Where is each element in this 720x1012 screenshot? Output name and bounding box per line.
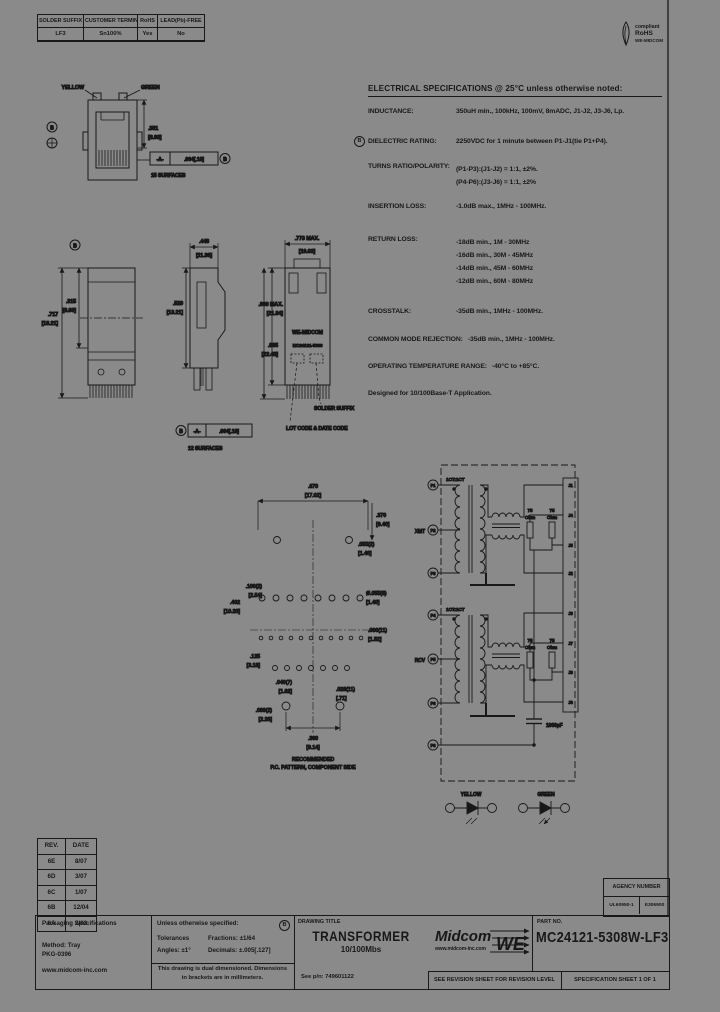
spec-footnote: Designed for 10/100Base-T Application. xyxy=(368,390,492,397)
pin-label: P1 xyxy=(431,483,437,488)
dim-773-in: .773 MAX. xyxy=(295,236,320,242)
rev-header: REV. xyxy=(38,839,66,855)
rear-view: B .315 [8.00] .717 [18.21] xyxy=(42,240,143,398)
frame-balloon: B xyxy=(223,157,227,163)
resistor-unit: Ohm xyxy=(547,515,557,520)
table-cell: No xyxy=(158,28,204,40)
turns-ratio-top: 1CT:1CT xyxy=(446,477,465,483)
electrical-specifications: ELECTRICAL SPECIFICATIONS @ 25°C unless … xyxy=(368,84,662,97)
dim-402-mm: [10.20] xyxy=(224,609,241,615)
table-row: 3/07 xyxy=(66,870,96,886)
pin-label: J3 xyxy=(568,611,573,616)
table-row: 1/07 xyxy=(66,886,96,902)
table-row: 8/07 xyxy=(66,855,96,871)
brand-url: www.midcom-inc.com xyxy=(434,946,486,952)
dim-520-in: .520 xyxy=(173,301,183,307)
see-pn-note: See p/n: 749601122 xyxy=(301,974,354,980)
midcom-logo: Midcom www.midcom-inc.com WE xyxy=(434,922,534,971)
pin-label: J1 xyxy=(568,483,573,488)
spec-value: -35dB min., 1MHz - 100MHz. xyxy=(456,308,543,315)
spec-label: DIELECTRIC RATING: xyxy=(368,138,456,145)
table-cell: Yes xyxy=(138,28,158,40)
spec-label: OPERATING TEMPERATURE RANGE: xyxy=(368,363,487,370)
dual-dimension-note: in brackets are in millimeters. xyxy=(151,975,294,981)
dim-670-mm: [17.02] xyxy=(305,493,322,499)
dim-315-mm: [8.00] xyxy=(63,308,77,314)
dim-351-mm: [8.93] xyxy=(148,135,162,141)
dim-028-mm: [.71] xyxy=(336,696,347,702)
dim-055b-mm: [1.40] xyxy=(366,600,380,606)
pin-label: J2 xyxy=(568,571,573,576)
balloon-b: B xyxy=(279,920,290,931)
dim-028-in: .028(11) xyxy=(336,687,355,693)
rohs-compliant-badge: compliant RoHS WE-MIDCOM xyxy=(619,20,663,48)
resistor-unit: Ohm xyxy=(547,645,557,650)
spec-value: 350uH min., 100kHz, 100mV, 8mADC, J1-J2,… xyxy=(456,108,624,115)
part-number: MC24121-5308W-LF3 xyxy=(536,929,668,946)
dim-885-mm: [22.48] xyxy=(262,352,279,358)
dim-370-in: .370 xyxy=(376,513,386,519)
tolerance-heading: Unless otherwise specified: xyxy=(157,920,239,927)
spec-value: -16dB min., 30M - 45MHz xyxy=(456,249,533,262)
dim-125-mm: [3.18] xyxy=(247,663,261,669)
pin-label: P4 xyxy=(431,613,437,618)
schematic: XMT RCV 1CT:1CT 1CT:1CT 75 Ohm 75 Ohm 75… xyxy=(415,465,578,824)
spec-value: -35dB min., 1MHz - 100MHz. xyxy=(468,336,555,343)
dim-100-in: .100(2) xyxy=(246,584,263,590)
spec-value: -1.0dB max., 1MHz - 100MHz. xyxy=(456,203,546,210)
badge-brand-text: WE-MIDCOM xyxy=(635,38,663,44)
resistor-unit: Ohm xyxy=(525,645,535,650)
dim-402-in: .402 xyxy=(230,600,240,606)
xmt-label: XMT xyxy=(415,529,425,535)
spec-value: -14dB min., 45M - 60MHz xyxy=(456,262,533,275)
table-cell: LF3 xyxy=(38,28,84,40)
resistor-unit: Ohm xyxy=(525,515,535,520)
agency-number-box: AGENCY NUMBER UL60950-1 E306900 xyxy=(603,878,670,917)
balloon-b: B xyxy=(50,126,54,132)
spec-row-inductance: INDUCTANCE: 350uH min., 100kHz, 100mV, 8… xyxy=(368,108,624,115)
date-header: DATE xyxy=(66,839,96,855)
dim-860-in: .860 MAX. xyxy=(258,302,283,308)
pcb-pattern: .670 [17.02] .370 [9.40] .055(2) [1.40] … xyxy=(224,484,390,771)
spec-value: -18dB min., 1M - 30MHz xyxy=(456,236,533,249)
datum-frame-2: B -A- .004[.10] 12 SURFACES xyxy=(176,424,252,452)
lot-code-callout: LOT CODE & DATE CODE xyxy=(286,426,348,432)
table-row: 6D xyxy=(38,870,66,886)
table-row: 6E xyxy=(38,855,66,871)
dim-370-mm: [9.40] xyxy=(376,522,390,528)
dim-448-mm: [11.38] xyxy=(196,253,212,259)
spec-row-dielectric: DIELECTRIC RATING: 2250VDC for 1 minute … xyxy=(368,138,608,145)
tolerance-cell: .004[.10] xyxy=(219,429,239,435)
dim-360-in: .360 xyxy=(308,736,318,742)
table-header: CUSTOMER TERMINAL xyxy=(84,15,138,28)
spec-row-turns-ratio: TURNS RATIO/POLARITY: (P1-P3):(J1-J2) = … xyxy=(368,163,538,189)
divider xyxy=(151,963,294,964)
dim-040-mm: [1.02] xyxy=(279,689,293,695)
solder-suffix-callout: SOLDER SUFFIX xyxy=(314,406,355,412)
table-cell: Sn100% xyxy=(84,28,138,40)
pin-label: P5 xyxy=(431,657,437,662)
tolerance-row-label: Tolerances xyxy=(157,935,189,942)
yellow-led-label: YELLOW xyxy=(461,792,482,798)
dual-dimension-note: This drawing is dual dimensioned. Dimens… xyxy=(151,966,294,972)
pin-label: J8 xyxy=(568,670,573,675)
dim-448-in: .448 xyxy=(199,239,209,245)
dim-125-in: .125 xyxy=(250,654,260,660)
table-row: 6C xyxy=(38,886,66,902)
pcb-caption-1: RECOMMENDED xyxy=(292,757,335,763)
drawing-title: TRANSFORMER xyxy=(304,928,418,944)
surfaces-note: 12 SURFACES xyxy=(188,446,223,452)
revision-note: SEE REVISION SHEET FOR REVISION LEVEL xyxy=(428,971,561,989)
agency-ul-number: UL60950-1 xyxy=(604,897,640,914)
rcv-label: RCV xyxy=(415,658,426,664)
turns-ratio-bottom: 1CT:1CT xyxy=(446,607,465,613)
tolerance-cell: .004[.10] xyxy=(184,157,204,163)
frame-balloon: B xyxy=(179,429,183,435)
dim-055a-mm: [1.40] xyxy=(358,551,372,557)
dim-885-in: .885 xyxy=(268,343,278,349)
spec-row-temperature: OPERATING TEMPERATURE RANGE: -40°C to +8… xyxy=(368,363,539,370)
resistor-value: 75 xyxy=(550,508,555,513)
dim-089-mm: [2.26] xyxy=(259,717,273,723)
dim-315-in: .315 xyxy=(66,299,76,305)
dim-860-mm: [21.84] xyxy=(267,311,284,317)
pin-label: J7 xyxy=(568,641,573,646)
agency-file-number: E306900 xyxy=(640,897,669,914)
dim-060-in: .060(11) xyxy=(368,628,387,634)
spec-label: COMMON MODE REJECTION: xyxy=(368,336,463,343)
green-led-label: GREEN xyxy=(537,792,555,798)
dim-717-in: .717 xyxy=(48,312,58,318)
spec-row-crosstalk: CROSSTALK: -35dB min., 1MHz - 100MHz. xyxy=(368,308,543,315)
pin-label: P8 xyxy=(431,743,437,748)
pin-label: J5 xyxy=(568,543,573,548)
marking-part: MC24121-5308 xyxy=(293,343,323,348)
resistor-value: 75 xyxy=(550,638,555,643)
spec-label: INSERTION LOSS: xyxy=(368,203,456,210)
dim-040-in: .040(7) xyxy=(276,680,293,686)
spec-label: TURNS RATIO/POLARITY: xyxy=(368,163,456,189)
badge-rohs-text: RoHS xyxy=(635,30,663,38)
datum-a-cell: -A- xyxy=(194,429,201,435)
dim-089-in: .089(2) xyxy=(256,708,273,714)
tolerance-fractions: Fractions: ±1/64 xyxy=(208,935,255,942)
spec-row-common-mode: COMMON MODE REJECTION: -35dB min., 1MHz … xyxy=(368,336,555,343)
dim-060-mm: [1.52] xyxy=(368,637,382,643)
pin-label: P2 xyxy=(431,528,437,533)
balloon-b: B xyxy=(73,244,77,250)
pin-label: P6 xyxy=(431,701,437,706)
table-header: SOLDER SUFFIX xyxy=(38,15,84,28)
dim-351-in: .351 xyxy=(148,126,158,132)
cap-value: 1000pF xyxy=(546,723,563,729)
drawing-title-label: DRAWING TITLE xyxy=(298,919,341,925)
tolerance-angles: Angles: ±1° xyxy=(157,947,191,954)
spec-sheet-page: YELLOW GREEN B .351 [8.93] -A- .004[.10]… xyxy=(0,0,720,1012)
spec-value: (P1-P3):(J1-J2) = 1:1, ±2%. xyxy=(456,163,538,176)
resistor-value: 75 xyxy=(528,508,533,513)
packaging-url: www.midcom-inc.com xyxy=(42,967,107,974)
pin-label: J4 xyxy=(568,513,573,518)
dim-717-mm: [18.21] xyxy=(42,321,59,327)
datum-a-cell: -A- xyxy=(157,157,164,163)
part-number-label: PART NO. xyxy=(537,919,562,925)
spec-row-insertion-loss: INSERTION LOSS: -1.0dB max., 1MHz - 100M… xyxy=(368,203,546,210)
marking-view: WE-MIDCOM MC24121-5308 SOLDER SUFFIX LOT… xyxy=(258,236,354,432)
sheet-note: SPECIFICATION SHEET 1 OF 1 xyxy=(561,971,669,989)
packaging-method: Method: Tray xyxy=(42,942,81,949)
dim-670-in: .670 xyxy=(308,484,318,490)
spec-value: 2250VDC for 1 minute between P1-J1(tie P… xyxy=(456,138,608,145)
engineering-drawing: YELLOW GREEN B .351 [8.93] -A- .004[.10]… xyxy=(0,0,720,1012)
dim-055a-in: .055(2) xyxy=(358,542,375,548)
dim-520-mm: [13.21] xyxy=(167,310,184,316)
electrical-specs-title: ELECTRICAL SPECIFICATIONS @ 25°C unless … xyxy=(368,84,662,97)
dim-055b-in: Ø.055(8) xyxy=(366,591,387,597)
yellow-led-label: YELLOW xyxy=(62,85,85,91)
drawing-subtitle: 10/100Mbs xyxy=(294,945,428,954)
front-view: YELLOW GREEN B .351 [8.93] -A- .004[.10]… xyxy=(47,85,230,180)
table-header: LEAD(Pb)-FREE xyxy=(158,15,204,28)
green-led-label: GREEN xyxy=(141,85,160,91)
solder-info-table: SOLDER SUFFIX CUSTOMER TERMINAL RoHS LEA… xyxy=(37,14,205,42)
side-view: .448 [11.38] .520 [13.21] xyxy=(167,239,225,390)
spec-label: RETURN LOSS: xyxy=(368,236,456,288)
resistor-value: 75 xyxy=(528,638,533,643)
pin-label: J6 xyxy=(568,700,573,705)
balloon-b: B xyxy=(354,136,365,147)
spec-label: CROSSTALK: xyxy=(368,308,456,315)
marking-brand: WE-MIDCOM xyxy=(292,330,323,336)
title-block: Packaging Specifications Method: Tray PK… xyxy=(35,915,670,990)
spec-label: INDUCTANCE: xyxy=(368,108,456,115)
packaging-title: Packaging Specifications xyxy=(42,920,117,927)
pcb-caption-2: P.C. PATTERN, COMPONENT SIDE xyxy=(270,765,356,771)
spec-value: -12dB min., 60M - 80MHz xyxy=(456,275,533,288)
surfaces-note: 15 SURFACES xyxy=(151,173,186,179)
leaf-icon xyxy=(619,20,633,48)
brand-name: Midcom xyxy=(435,928,491,945)
pin-label: P3 xyxy=(431,571,437,576)
dim-773-mm: [19.63] xyxy=(299,249,316,255)
spec-value: (P4-P6):(J3-J6) = 1:1, ±2% xyxy=(456,176,538,189)
agency-label: AGENCY NUMBER xyxy=(604,879,669,897)
spec-value: -40°C to +85°C. xyxy=(492,363,539,370)
tolerance-decimals: Decimals: ±.005[.127] xyxy=(208,947,271,954)
table-header: RoHS xyxy=(138,15,158,28)
we-logo-text: WE xyxy=(496,934,526,954)
packaging-number: PKG-0396 xyxy=(42,951,71,958)
spec-row-return-loss: RETURN LOSS: -18dB min., 1M - 30MHz -16d… xyxy=(368,236,533,288)
dim-360-mm: [9.14] xyxy=(306,745,320,751)
